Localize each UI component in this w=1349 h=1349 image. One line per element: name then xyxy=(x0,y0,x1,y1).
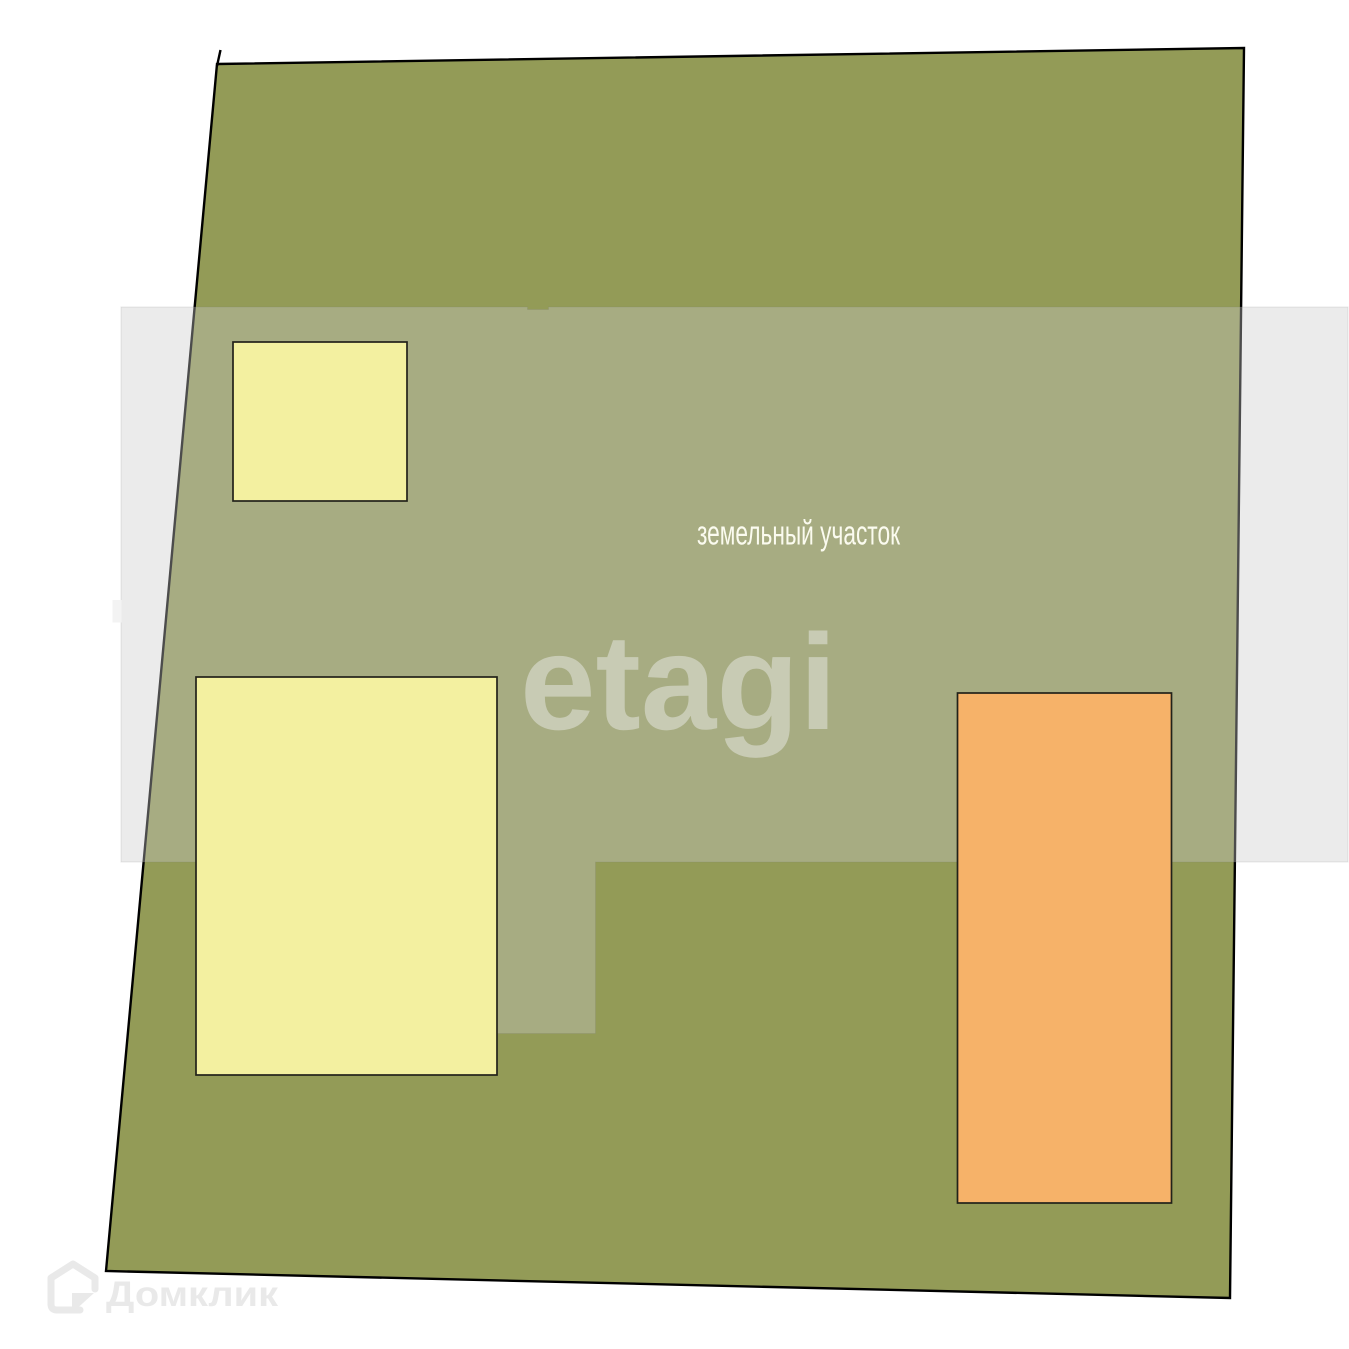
svg-text:etagi: etagi xyxy=(520,606,837,758)
svg-text:земельный участок: земельный участок xyxy=(697,515,901,553)
svg-text:Домклик: Домклик xyxy=(106,1275,279,1314)
